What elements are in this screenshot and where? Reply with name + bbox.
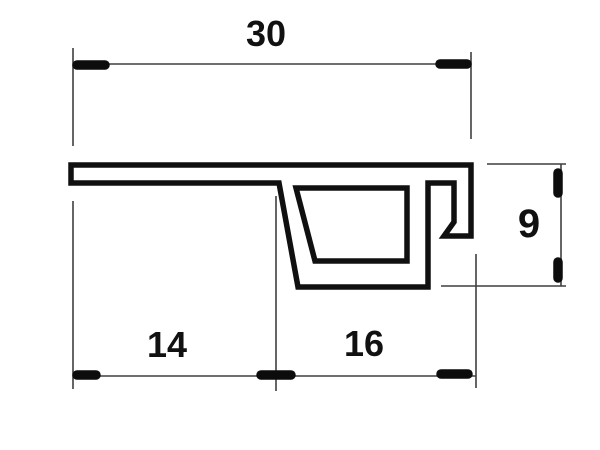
- profile-outer-outline: [71, 165, 471, 287]
- profile-drawing-canvas: 30 14 16 9: [0, 0, 600, 450]
- profile-cross-section: [71, 165, 471, 287]
- dimension-label-bottom-right-segment: 16: [344, 323, 384, 364]
- dimension-label-total-width: 30: [246, 13, 286, 54]
- dimension-label-right-height: 9: [518, 202, 540, 246]
- profile-inner-cavity-outline: [296, 188, 407, 261]
- dimension-label-bottom-left-segment: 14: [147, 324, 187, 365]
- drawing-page: 30 14 16 9: [0, 0, 600, 450]
- dimension-bottom-segments: 14 16: [73, 196, 476, 391]
- dimension-right-height: 9: [441, 164, 566, 286]
- dimension-total-width: 30: [73, 13, 471, 146]
